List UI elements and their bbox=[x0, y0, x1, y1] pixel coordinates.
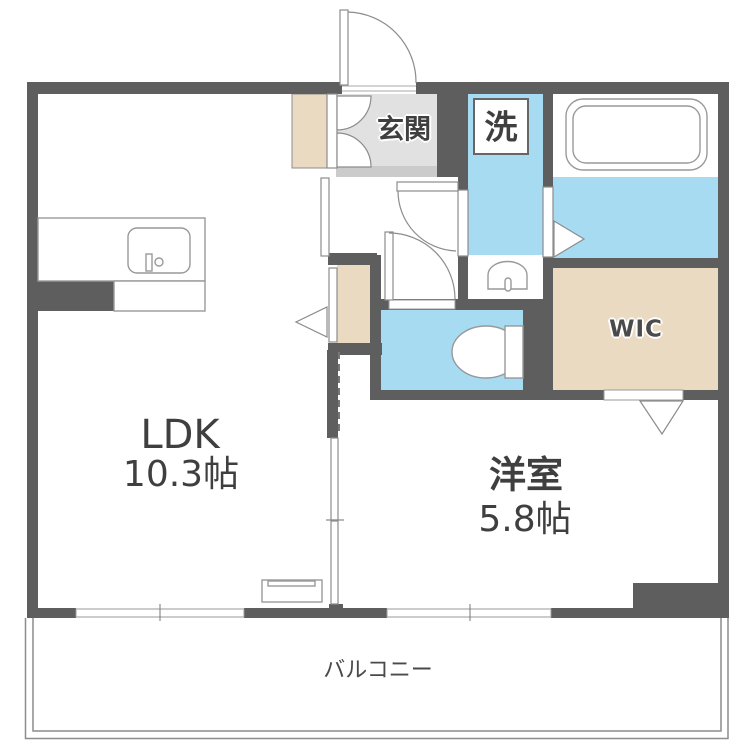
wall-right bbox=[718, 94, 729, 618]
wall-toilet-left bbox=[370, 255, 381, 400]
wall-stub-above-washroom-door bbox=[458, 177, 468, 190]
wall-entrance-washroom bbox=[437, 82, 468, 177]
label-western-room: 洋室 bbox=[489, 457, 563, 494]
sliding-door-panel-2 bbox=[331, 521, 338, 604]
bathtub-inner bbox=[573, 106, 700, 163]
wall-bottom-1 bbox=[27, 608, 76, 618]
wall-top-left bbox=[27, 82, 342, 94]
label-wic: WIC bbox=[609, 319, 663, 342]
bathroom-floor bbox=[553, 177, 718, 258]
sliding-door-panel-1 bbox=[331, 438, 338, 520]
washroom-door-arc bbox=[398, 191, 456, 251]
washroom-door-panel bbox=[397, 182, 458, 191]
shoe-cabinet bbox=[292, 94, 327, 168]
toilet-door-threshold bbox=[389, 300, 455, 309]
floor-plan-drawing bbox=[0, 0, 750, 750]
wall-bottom-3 bbox=[551, 608, 728, 618]
wall-corner-block bbox=[633, 583, 718, 608]
wall-bath-wic bbox=[543, 258, 729, 268]
hall-storage-cabinet bbox=[337, 265, 370, 343]
shoe-cabinet-door-panel bbox=[327, 94, 337, 168]
kitchen-faucet bbox=[146, 254, 152, 271]
toilet-door-arc bbox=[389, 233, 455, 299]
washbasin-faucet bbox=[505, 278, 511, 291]
floor-plan: 玄関 洗 WIC LDK 10.3帖 洋室 5.8帖 バルコニー bbox=[0, 0, 750, 750]
western-room-window bbox=[387, 609, 551, 617]
label-ldk: LDK bbox=[140, 415, 219, 455]
wall-washroom-bath-upper bbox=[543, 94, 553, 187]
kitchen-counter-return bbox=[114, 281, 205, 311]
wall-left bbox=[27, 94, 38, 618]
cabinet-door-panel bbox=[329, 268, 337, 342]
kitchen-faucet-knob bbox=[155, 258, 163, 266]
wall-kitchen-block bbox=[27, 281, 114, 311]
washroom-door-slot bbox=[458, 190, 468, 256]
bathroom-door-slot bbox=[543, 187, 553, 257]
toilet-door-panel bbox=[385, 232, 393, 300]
wall-partition-upper bbox=[327, 350, 338, 438]
label-western-room-size: 5.8帖 bbox=[478, 502, 571, 538]
wall-bottom-2 bbox=[244, 608, 387, 618]
wall-above-cabinet bbox=[328, 253, 377, 265]
toilet-tank bbox=[505, 326, 523, 378]
cabinet-opening-triangle bbox=[296, 307, 327, 337]
entrance-door-arc bbox=[348, 12, 416, 83]
label-laundry: 洗 bbox=[485, 111, 518, 144]
wall-toilet-wic bbox=[523, 310, 553, 390]
entrance-door-panel bbox=[340, 10, 348, 85]
label-entrance: 玄関 bbox=[377, 117, 431, 144]
entrance-threshold-lines bbox=[342, 86, 416, 91]
label-ldk-size: 10.3帖 bbox=[123, 457, 239, 493]
tv-board-detail bbox=[268, 581, 315, 586]
ldk-hall-opening bbox=[321, 178, 329, 256]
wic-opening-triangle bbox=[640, 401, 683, 434]
wic-opening bbox=[604, 390, 683, 400]
label-balcony: バルコニー bbox=[323, 660, 433, 682]
entrance-step bbox=[336, 166, 440, 177]
